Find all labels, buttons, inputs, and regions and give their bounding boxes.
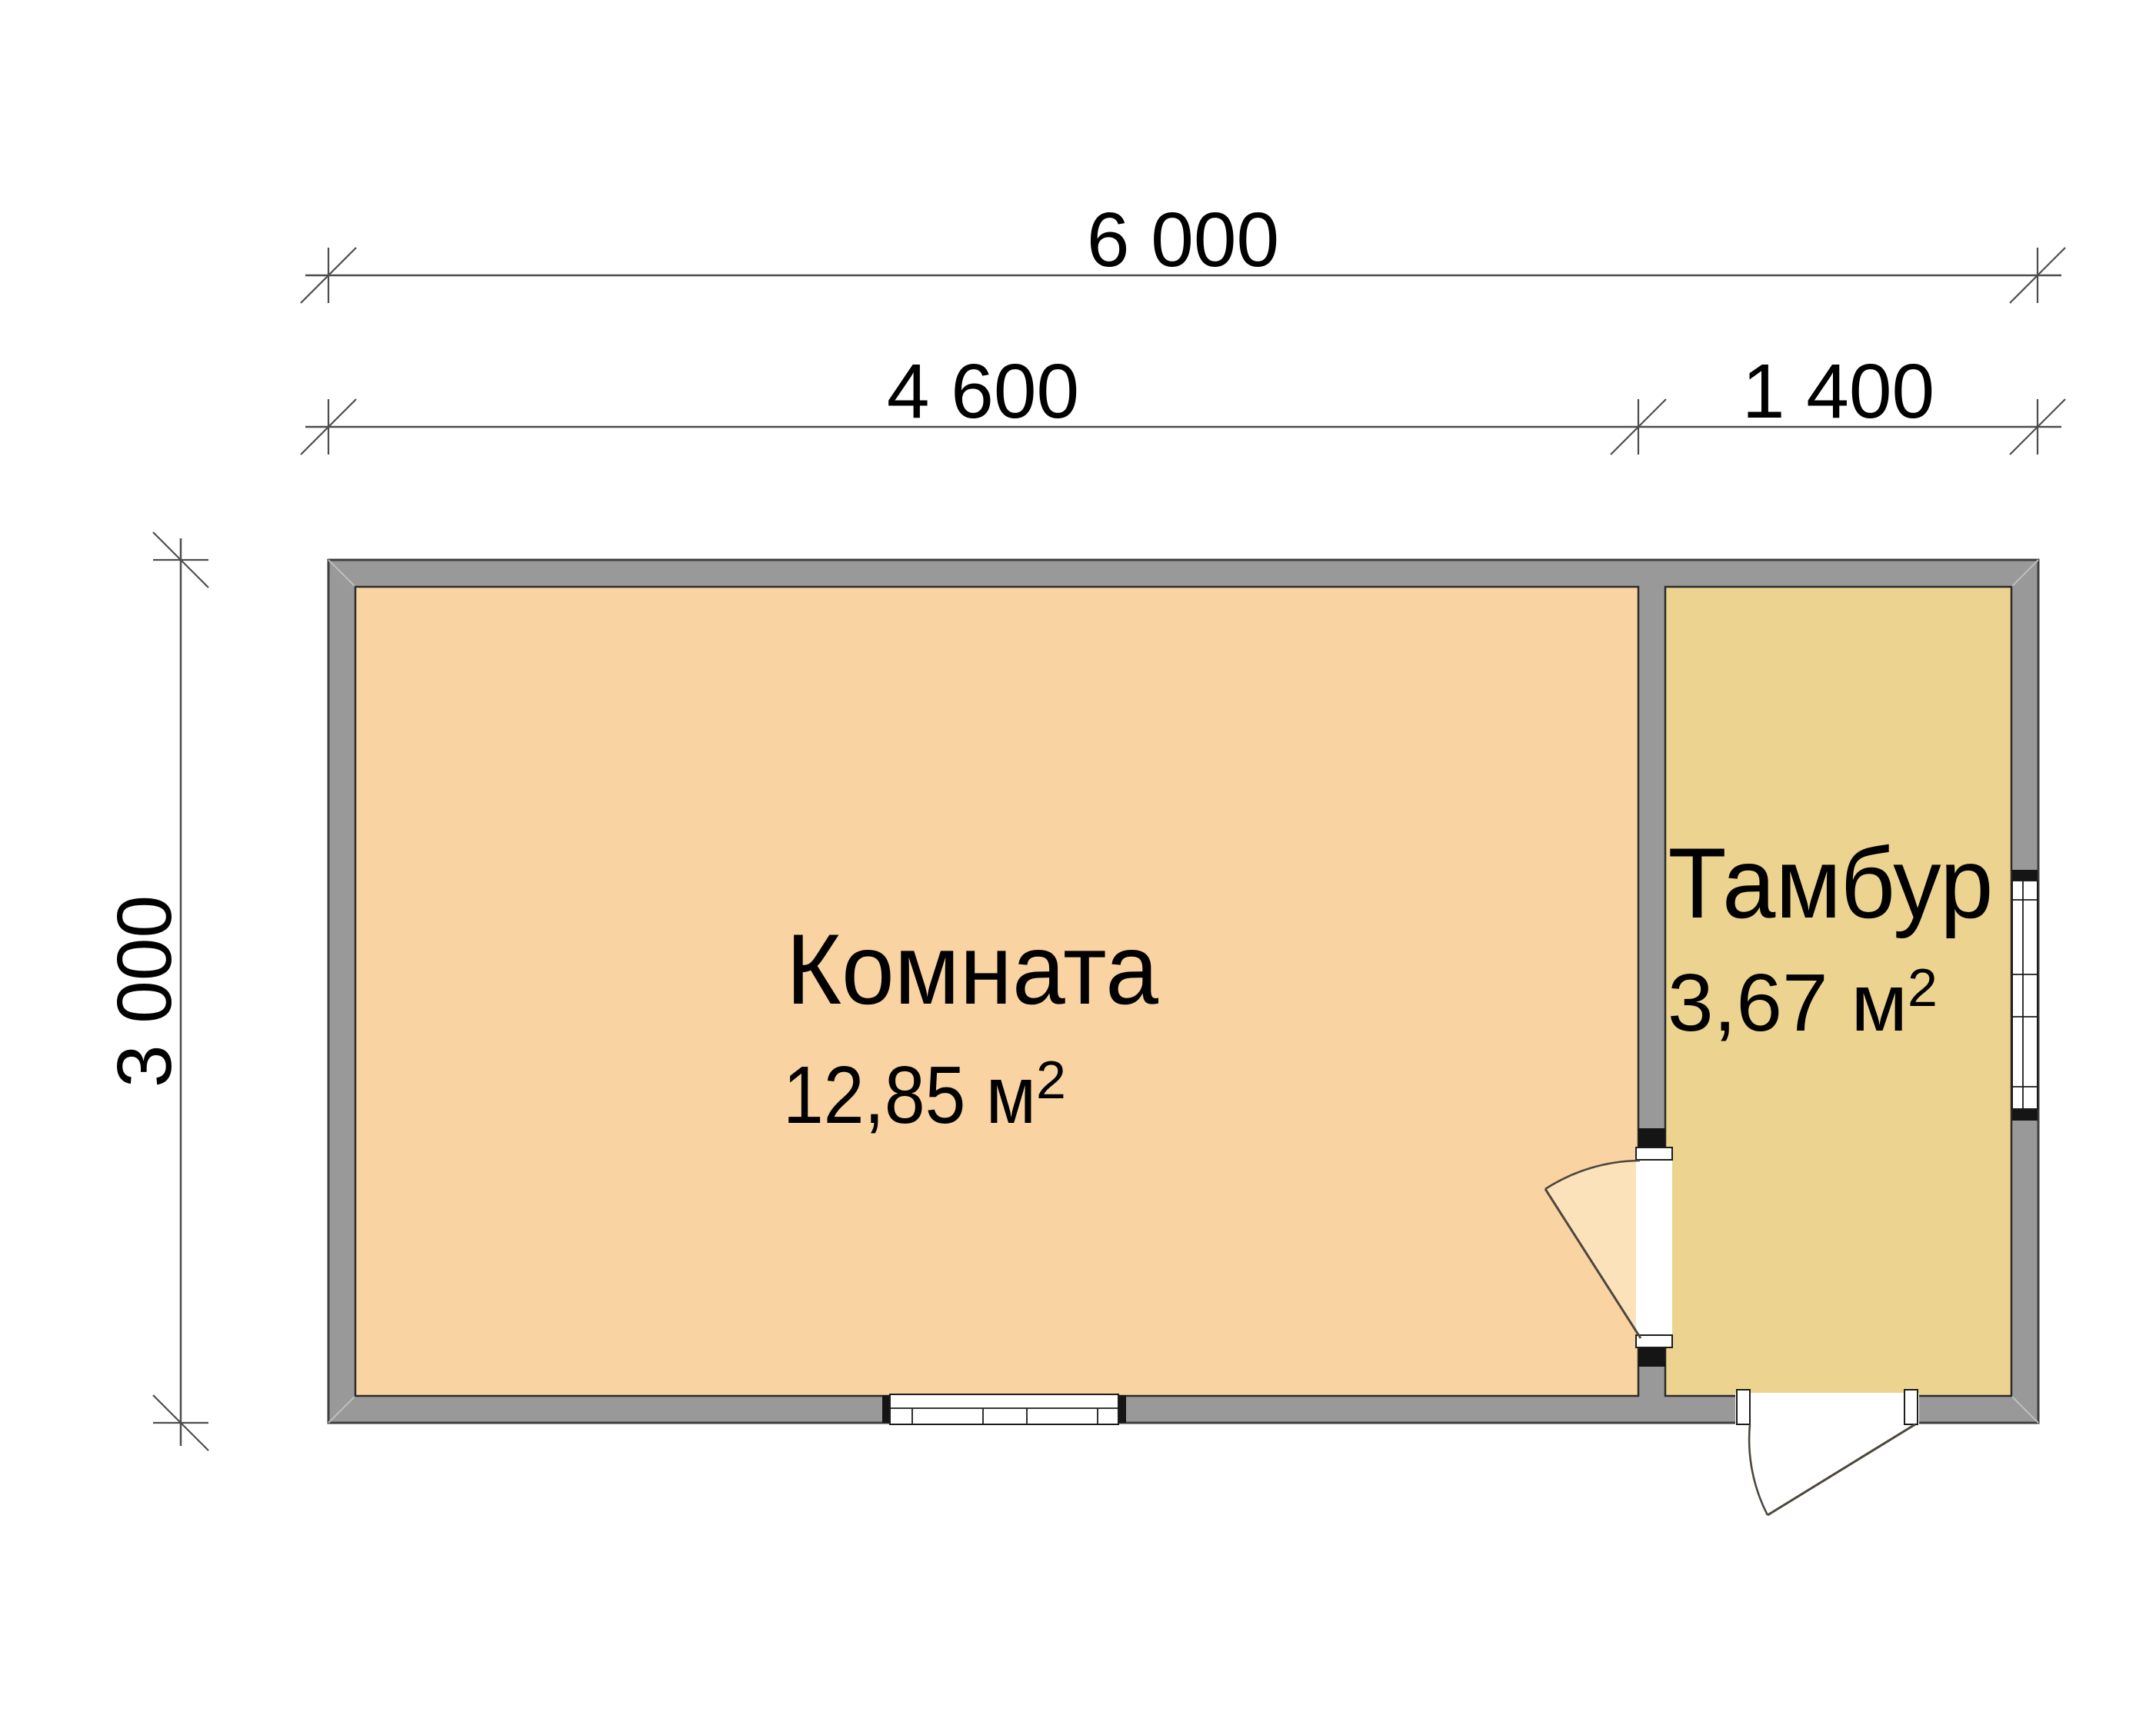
exterior-door-leaf xyxy=(1768,1424,1915,1515)
dim-label-room-width: 4 600 xyxy=(887,348,1079,435)
right-window-wall-cap-top xyxy=(2012,870,2038,881)
vestibule-name-label: Тамбур xyxy=(1668,827,1994,939)
vestibule-area-superscript: 2 xyxy=(1908,958,1938,1018)
dim-label-total-width: 6 000 xyxy=(1087,197,1279,283)
exterior-door-jamb-right xyxy=(1904,1390,1918,1424)
room-area-value: 12,85 м xyxy=(783,1050,1036,1141)
vestibule-area-value: 3,67 м xyxy=(1668,958,1908,1048)
interior-door-wall-cap-top xyxy=(1638,1128,1665,1147)
interior-door-jamb-top xyxy=(1636,1147,1672,1160)
dim-label-vestibule-width: 1 400 xyxy=(1742,348,1934,435)
room-area-superscript: 2 xyxy=(1036,1050,1066,1110)
bottom-window-wall-cap-left xyxy=(882,1395,890,1423)
right-window-wall-cap-bottom xyxy=(2012,1109,2038,1121)
exterior-door-jamb-left xyxy=(1737,1390,1750,1424)
bottom-window-wall-cap-right xyxy=(1118,1395,1126,1423)
interior-door-opening xyxy=(1636,1147,1672,1347)
vestibule-area-label: 3,67 м2 xyxy=(1668,958,1938,1048)
right-window-frame xyxy=(2012,881,2038,1109)
exterior-door-opening xyxy=(1735,1393,1919,1424)
floor-plan-svg: 6 000 4 600 1 400 3 000 Комната 12,85 м2… xyxy=(0,0,2156,1712)
floor-plan-page: 6 000 4 600 1 400 3 000 Комната 12,85 м2… xyxy=(0,0,2156,1712)
bottom-window-frame xyxy=(890,1394,1118,1424)
interior-door-jamb-bottom xyxy=(1636,1335,1672,1347)
room-name-label: Комната xyxy=(786,913,1159,1025)
exterior-door-swing-arc xyxy=(1749,1424,1768,1515)
dim-label-height: 3 000 xyxy=(102,895,188,1087)
interior-door-wall-cap-bottom xyxy=(1638,1347,1665,1367)
room-area-label: 12,85 м2 xyxy=(783,1050,1066,1141)
